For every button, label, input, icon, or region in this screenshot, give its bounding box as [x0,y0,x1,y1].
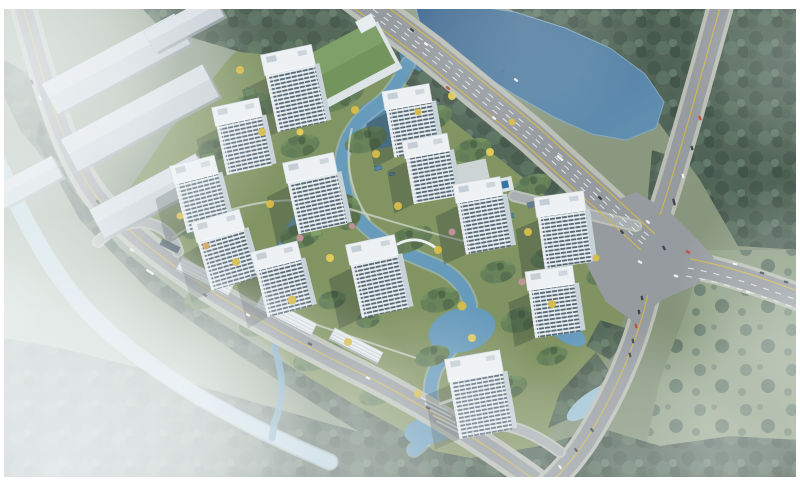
scene-root [0,0,800,485]
rendering-frame: Aerial bird's-eye rendering of a riversi… [0,0,800,485]
aerial-rendering [0,0,800,485]
cool-tint [4,9,796,477]
